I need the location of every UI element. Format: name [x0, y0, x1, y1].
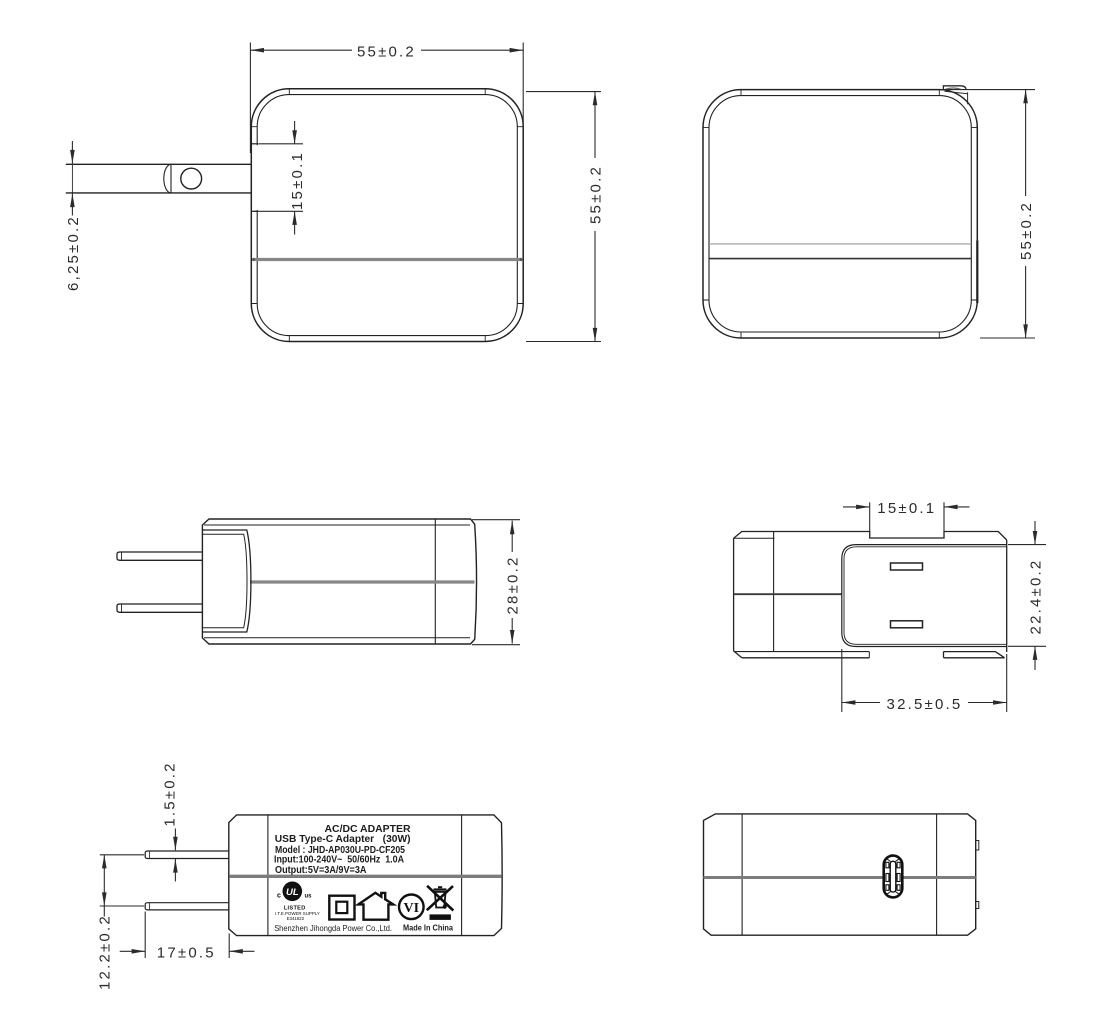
svg-text:12.2±0.2: 12.2±0.2: [97, 914, 114, 990]
svg-text:Made In China: Made In China: [403, 922, 453, 932]
svg-text:Shenzhen Jihongda Power Co.,Lt: Shenzhen Jihongda Power Co.,Ltd.: [274, 923, 392, 933]
svg-text:22.4±0.2: 22.4±0.2: [1028, 559, 1045, 635]
svg-text:55±0.2: 55±0.2: [588, 165, 605, 224]
svg-text:USB Type-C Adapter (30W): USB Type-C Adapter (30W): [275, 834, 411, 845]
svg-text:6,25±0.2: 6,25±0.2: [65, 215, 82, 291]
svg-text:us: us: [304, 894, 312, 900]
svg-text:Input:100-240V~ 50/60Hz 1.0A: Input:100-240V~ 50/60Hz 1.0A: [274, 855, 404, 866]
svg-text:55±0.2: 55±0.2: [1018, 201, 1035, 260]
svg-text:17±0.5: 17±0.5: [157, 944, 216, 961]
svg-text:c: c: [277, 893, 281, 900]
svg-text:Output:5V=3A/9V=3A: Output:5V=3A/9V=3A: [275, 865, 367, 876]
svg-text:E341822: E341822: [287, 916, 305, 921]
svg-text:32.5±0.5: 32.5±0.5: [887, 696, 963, 713]
svg-text:15±0.1: 15±0.1: [289, 151, 306, 210]
svg-text:1.5±0.2: 1.5±0.2: [162, 761, 179, 826]
svg-text:UL: UL: [286, 887, 299, 898]
svg-text:28±0.2: 28±0.2: [505, 556, 522, 615]
svg-text:55±0.2: 55±0.2: [357, 44, 416, 61]
svg-text:15±0.1: 15±0.1: [877, 500, 936, 517]
svg-text:VI: VI: [404, 901, 420, 916]
